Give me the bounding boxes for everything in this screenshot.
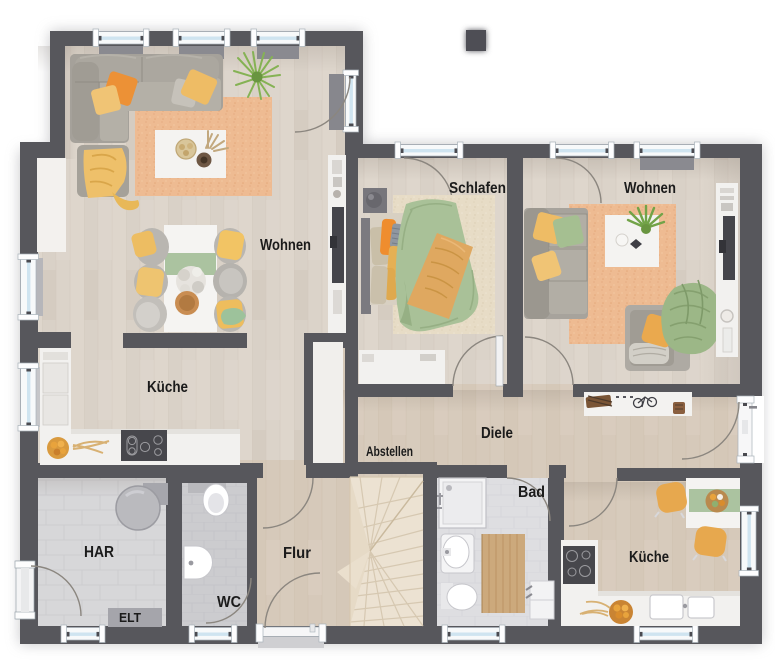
svg-text:Flur: Flur: [283, 545, 311, 562]
svg-text:WC: WC: [217, 594, 241, 611]
svg-text:Wohnen: Wohnen: [624, 180, 676, 197]
svg-text:Abstellen: Abstellen: [366, 443, 413, 459]
svg-text:Wohnen: Wohnen: [260, 237, 311, 254]
svg-text:Bad: Bad: [518, 484, 545, 501]
svg-text:Küche: Küche: [147, 379, 188, 396]
svg-text:Schlafen: Schlafen: [449, 180, 506, 197]
svg-text:HAR: HAR: [84, 544, 114, 561]
svg-text:Diele: Diele: [481, 425, 513, 442]
svg-text:Küche: Küche: [629, 549, 669, 566]
svg-text:ELT: ELT: [119, 610, 141, 625]
